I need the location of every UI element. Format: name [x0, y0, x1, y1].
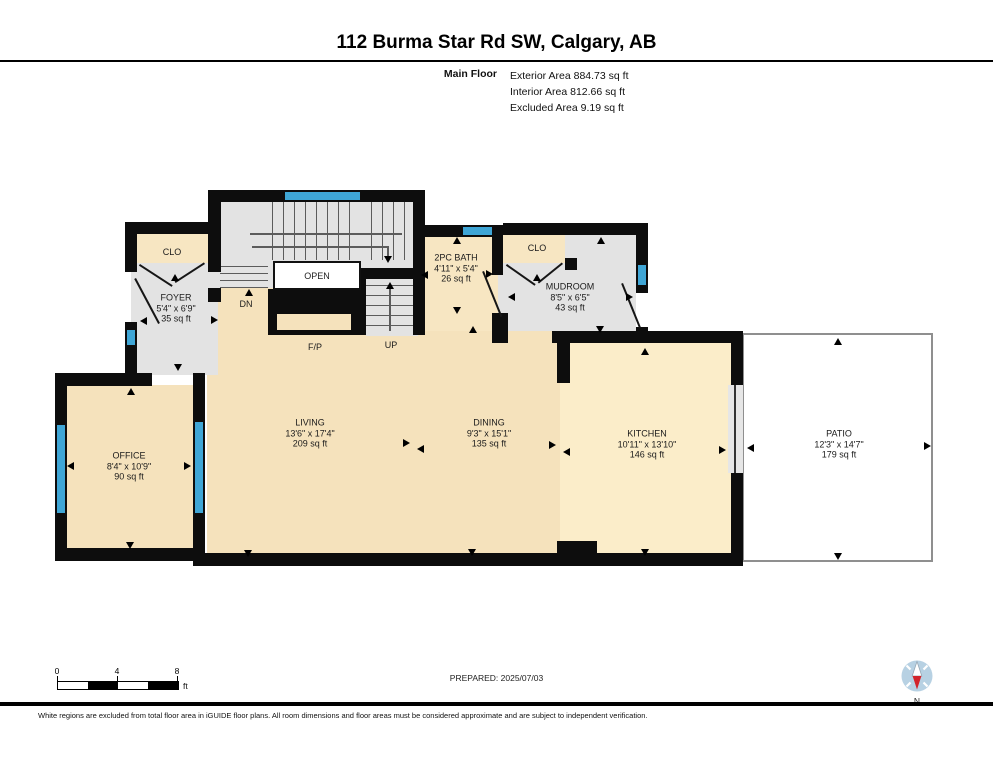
dimension-arrow — [67, 462, 74, 470]
stair-tread — [371, 202, 372, 260]
stair-tread — [250, 233, 402, 235]
stair-tread — [294, 202, 295, 260]
stair-tread — [220, 266, 268, 267]
dimension-arrow — [453, 307, 461, 314]
wall-segment — [125, 345, 137, 378]
wall-segment — [193, 513, 205, 566]
stairs-up-label: UP — [385, 340, 398, 350]
wall-segment — [208, 190, 221, 272]
dimension-arrow — [171, 274, 179, 281]
wall-segment — [125, 222, 137, 272]
wall-segment — [636, 285, 648, 293]
room-label-bath: 2PC BATH 4'11" x 5'4" 26 sq ft — [434, 252, 478, 284]
stair-tread — [382, 202, 383, 260]
stair-tread — [220, 280, 268, 281]
dimension-arrow — [596, 326, 604, 333]
dimension-arrow — [127, 388, 135, 395]
dimension-arrow — [597, 237, 605, 244]
dimension-arrow — [140, 317, 147, 325]
stair-tread — [327, 202, 328, 260]
wall-segment — [557, 331, 570, 383]
dimension-arrow — [747, 444, 754, 452]
window — [193, 422, 205, 513]
wall-segment — [193, 373, 205, 422]
closet1-label: CLO — [163, 247, 182, 257]
dimension-arrow — [384, 256, 392, 263]
stair-tread — [272, 202, 273, 260]
disclaimer-text: White regions are excluded from total fl… — [38, 711, 958, 720]
footer-divider — [0, 702, 993, 706]
dimension-arrow — [453, 237, 461, 244]
dimension-arrow — [184, 462, 191, 470]
dimension-arrow — [641, 348, 649, 355]
fireplace-inset — [277, 314, 351, 330]
wall-segment — [208, 288, 221, 302]
wall-segment — [731, 473, 743, 566]
room-label-office: OFFICE 8'4" x 10'9" 90 sq ft — [107, 450, 151, 482]
wall-segment — [55, 548, 202, 561]
stair-tread — [389, 287, 391, 331]
dimension-arrow — [244, 550, 252, 557]
wall-segment — [565, 258, 577, 270]
dimension-arrow — [549, 441, 556, 449]
wall-segment — [413, 190, 425, 335]
window — [55, 425, 67, 513]
dimension-arrow — [508, 293, 515, 301]
stair-tread — [404, 202, 405, 260]
dimension-arrow — [486, 270, 493, 278]
wall-segment — [360, 268, 417, 279]
stair-tread — [305, 202, 306, 260]
floor-plan: OPEN FOYER 5'4" x 6'9" 35 sq ft OFFICE 8… — [0, 0, 993, 768]
room-label-living: LIVING 13'6" x 17'4" 209 sq ft — [285, 417, 334, 449]
fireplace-label: F/P — [308, 342, 322, 352]
dimension-arrow — [834, 338, 842, 345]
stair-tread — [220, 273, 268, 274]
wall-segment — [636, 223, 648, 265]
open-to-below-box: OPEN — [273, 261, 361, 290]
compass-icon — [898, 658, 936, 696]
wall-segment — [731, 331, 743, 385]
wall-segment — [503, 223, 648, 235]
wall-segment — [492, 225, 503, 275]
room-label-patio: PATIO 12'3" x 14'7" 179 sq ft — [814, 428, 863, 460]
dimension-arrow — [719, 446, 726, 454]
dimension-arrow — [403, 439, 410, 447]
window — [463, 225, 492, 237]
dimension-arrow — [533, 274, 541, 281]
room-label-dining: DINING 9'3" x 15'1" 135 sq ft — [467, 417, 511, 449]
dimension-arrow — [211, 316, 218, 324]
dimension-arrow — [417, 445, 424, 453]
room-label-mudroom: MUDROOM 8'5" x 6'5" 43 sq ft — [546, 281, 595, 313]
dimension-arrow — [126, 542, 134, 549]
dimension-arrow — [924, 442, 931, 450]
dimension-arrow — [834, 553, 842, 560]
wall-segment — [557, 541, 597, 554]
room-label-kitchen: KITCHEN 10'11" x 13'10" 146 sq ft — [618, 428, 677, 460]
wall-segment — [492, 313, 508, 343]
dimension-arrow — [386, 282, 394, 289]
patio-door — [728, 385, 743, 473]
prepared-date: PREPARED: 2025/07/03 — [0, 673, 993, 683]
wall-segment — [125, 322, 137, 330]
open-label: OPEN — [304, 271, 330, 281]
wall-segment — [55, 373, 152, 386]
window — [636, 265, 648, 285]
floorplan-page: 112 Burma Star Rd SW, Calgary, AB Main F… — [0, 0, 993, 768]
window — [125, 330, 137, 345]
room-label-foyer: FOYER 5'4" x 6'9" 35 sq ft — [156, 292, 195, 324]
stair-tread — [393, 202, 394, 260]
dimension-arrow — [641, 549, 649, 556]
stair-tread — [316, 202, 317, 260]
dimension-arrow — [174, 364, 182, 371]
stairs-down-label: DN — [240, 299, 253, 309]
closet2-label: CLO — [528, 243, 547, 253]
stair-tread — [283, 202, 284, 260]
wall-segment — [636, 327, 648, 343]
window — [285, 190, 360, 202]
dimension-arrow — [469, 326, 477, 333]
stair-tread — [252, 246, 388, 248]
dimension-arrow — [421, 271, 428, 279]
stair-tread — [349, 202, 350, 260]
dimension-arrow — [563, 448, 570, 456]
wall-segment — [55, 513, 67, 561]
dimension-arrow — [626, 293, 633, 301]
wall-segment — [55, 373, 67, 425]
stair-tread — [338, 202, 339, 260]
dimension-arrow — [468, 549, 476, 556]
wall-segment — [125, 222, 217, 234]
dimension-arrow — [245, 289, 253, 296]
